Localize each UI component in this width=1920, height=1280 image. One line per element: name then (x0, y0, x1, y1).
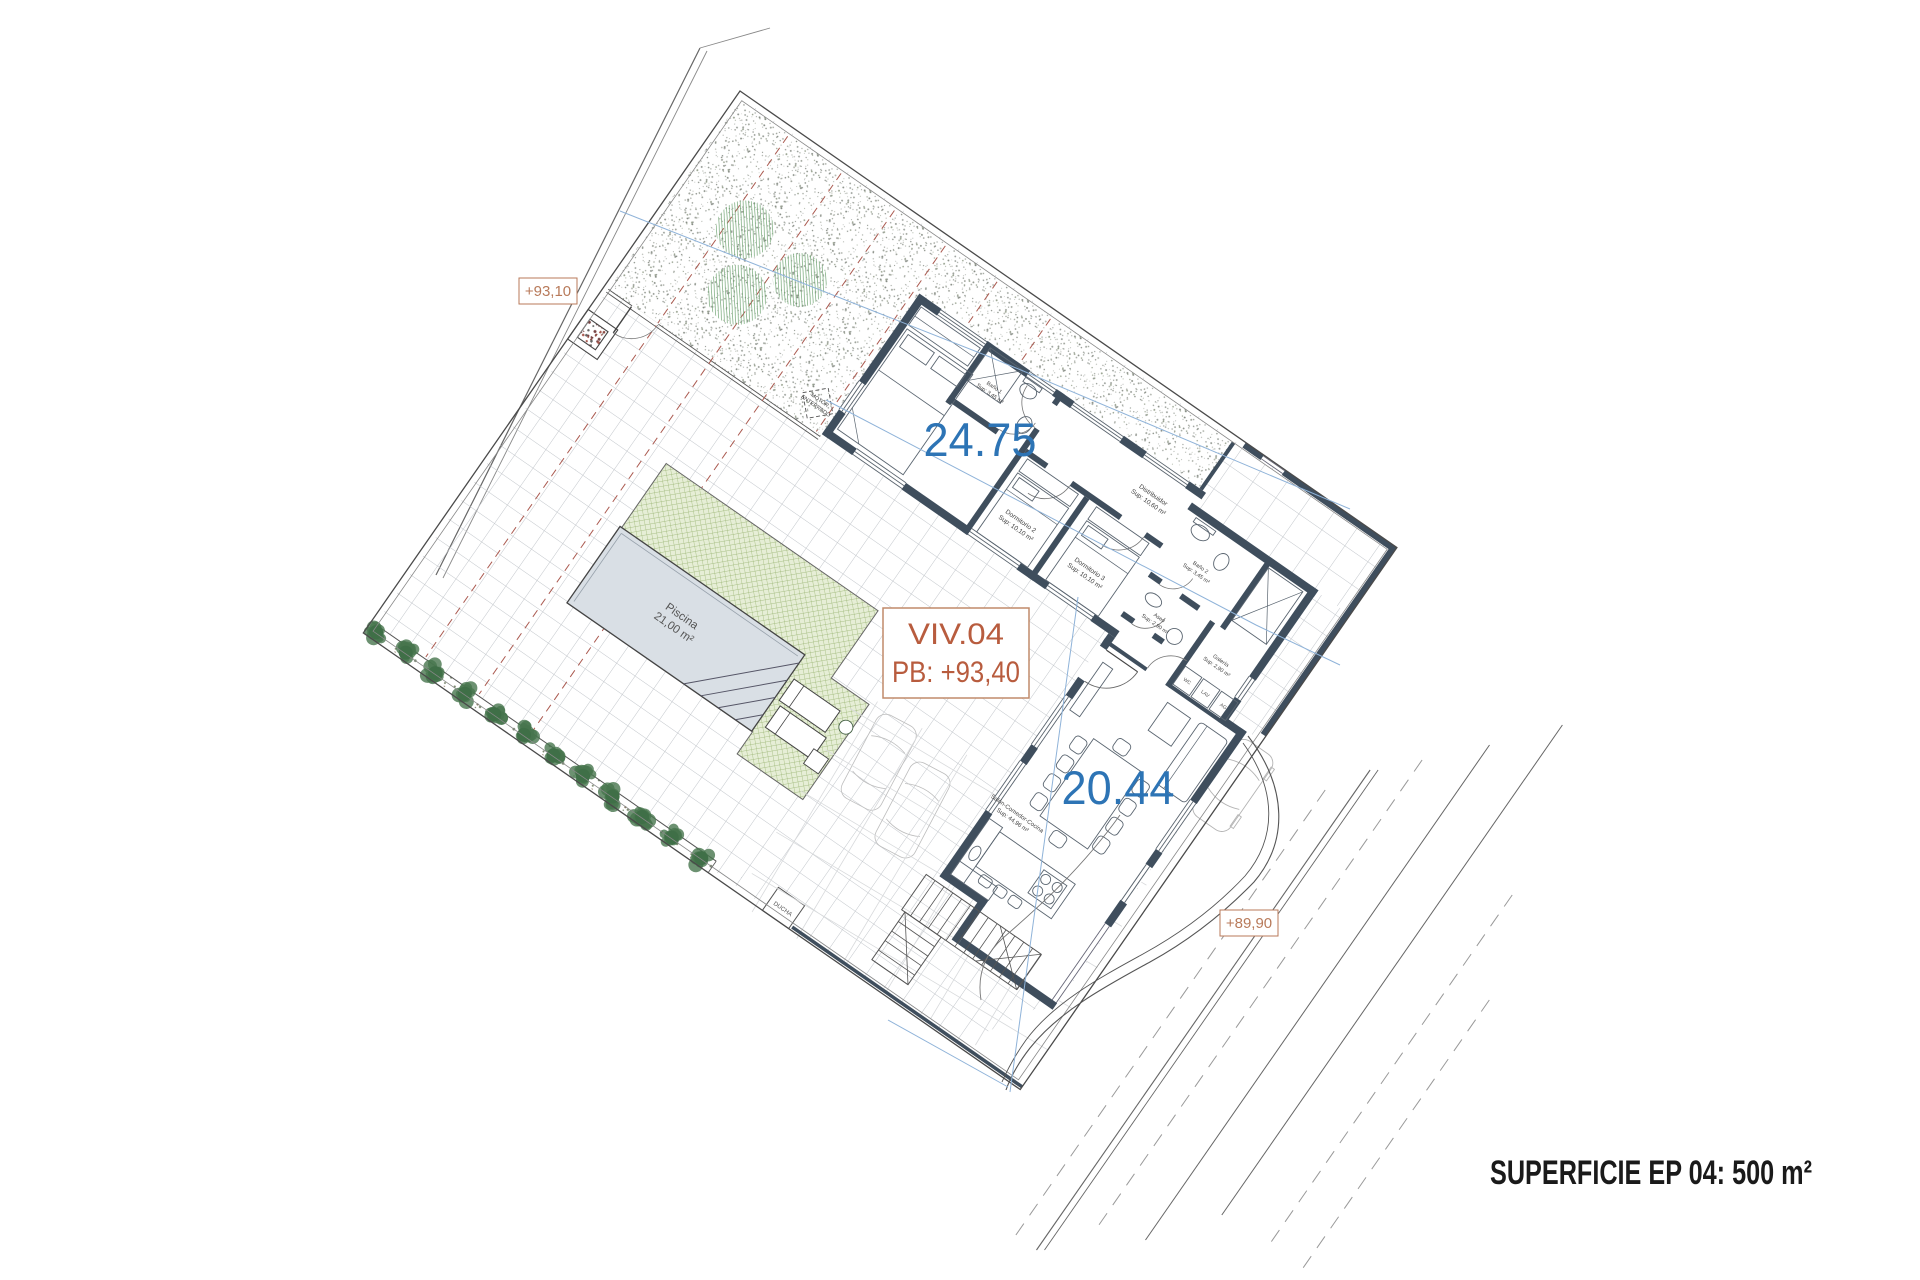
svg-text:20.44: 20.44 (1062, 761, 1175, 814)
svg-text:+93,10: +93,10 (525, 283, 571, 300)
svg-text:SUPERFICIE EP 04: 500 m²: SUPERFICIE EP 04: 500 m² (1490, 1154, 1812, 1192)
svg-text:+89,90: +89,90 (1226, 915, 1272, 932)
svg-text:VIV.04: VIV.04 (908, 618, 1004, 651)
svg-text:PB: +93,40: PB: +93,40 (892, 656, 1020, 689)
svg-text:24.75: 24.75 (924, 413, 1037, 466)
